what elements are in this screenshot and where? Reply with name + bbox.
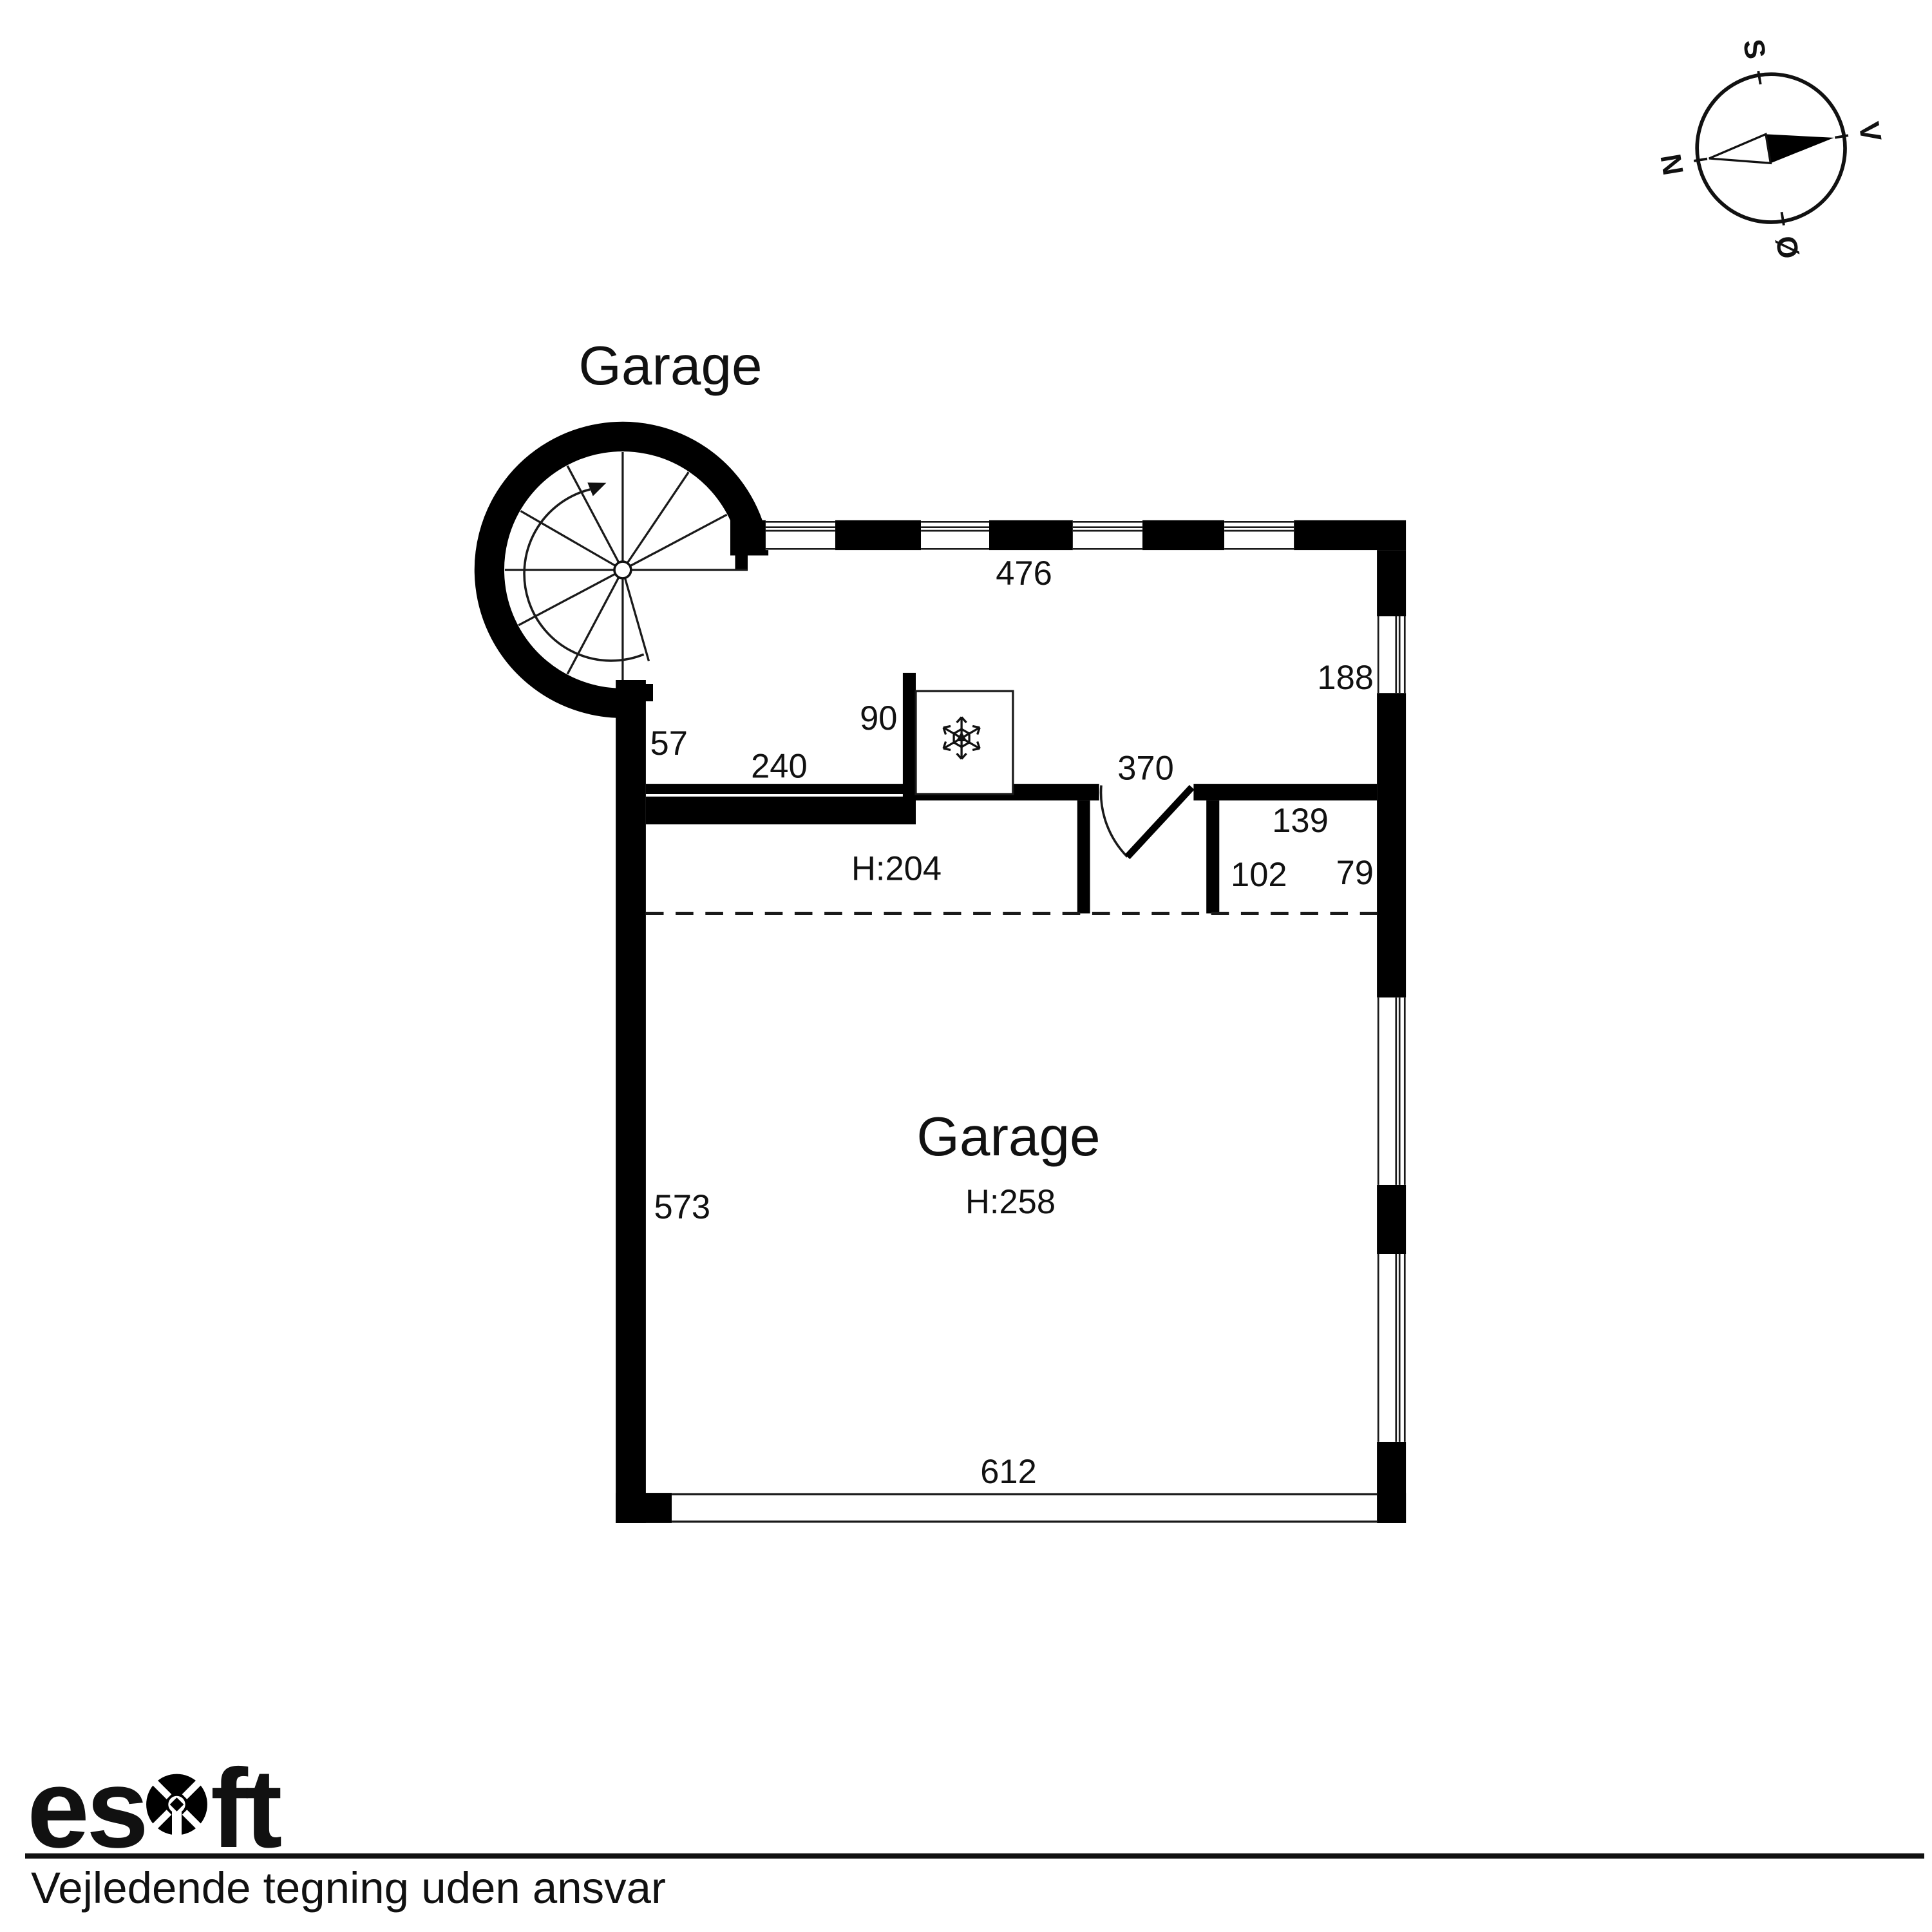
windows (766, 520, 1406, 1442)
stair-newel (614, 562, 631, 578)
interior-door (1101, 786, 1192, 857)
exterior-walls (616, 520, 1406, 1523)
window (1377, 616, 1406, 693)
dimension-label-right-window: 188 (1317, 659, 1374, 697)
room-height-garage: H:258 (965, 1183, 1056, 1221)
window (1073, 520, 1142, 550)
stair-direction-arrow (587, 482, 606, 496)
window (921, 520, 989, 550)
garage-door (672, 1493, 1377, 1523)
footer: es ft Vejledende tegning uden ansvar (25, 1745, 1924, 1913)
floorplan-canvas: V Ø N S Garage (0, 0, 1932, 1932)
room-name-garage: Garage (916, 1106, 1100, 1168)
freezer-box (916, 691, 1013, 794)
building-title: Garage (578, 336, 762, 397)
compass-needle (1707, 123, 1836, 173)
dimension-label-upper-room-right: 370 (1117, 750, 1174, 788)
dimension-label-right-room-depth: 102 (1231, 856, 1287, 894)
window (766, 520, 835, 550)
logo-text-left: es (27, 1745, 146, 1871)
dimension-label-left-wall: 573 (654, 1188, 711, 1226)
compass-letter-south: S (1737, 37, 1772, 61)
room-height-upper: H:204 (851, 850, 942, 888)
logo-text-right: ft (211, 1745, 281, 1871)
door-swing-arc (1101, 786, 1128, 857)
door-leaf (1128, 788, 1192, 857)
dimension-label-right-room-side: 79 (1336, 854, 1374, 892)
dimension-label-upper-room-width: 240 (751, 748, 808, 786)
compass-letter-west: V (1852, 120, 1888, 144)
freezer (916, 691, 1013, 794)
dimension-label-bottom-wall: 612 (980, 1453, 1037, 1491)
footer-divider (25, 1853, 1924, 1859)
window (1377, 998, 1406, 1185)
dimension-label-stair-wall: 57 (650, 724, 688, 762)
window (1224, 520, 1294, 550)
esoft-logo: es ft (27, 1745, 281, 1871)
compass-letter-east: Ø (1770, 234, 1806, 261)
spiral-staircase-icon (489, 437, 768, 703)
compass-icon: V Ø N S (1638, 21, 1904, 278)
dimension-label-top-wall: 476 (996, 554, 1052, 592)
dimension-label-right-room-width: 139 (1272, 802, 1329, 840)
footer-disclaimer: Vejledende tegning uden ansvar (31, 1863, 666, 1913)
compass-letter-north: N (1654, 151, 1690, 177)
logo-aperture-o-icon (146, 1774, 207, 1835)
dimension-label-freezer-width: 90 (860, 699, 897, 737)
floor-plan: Garage (489, 336, 1406, 1523)
window (1377, 1254, 1406, 1442)
